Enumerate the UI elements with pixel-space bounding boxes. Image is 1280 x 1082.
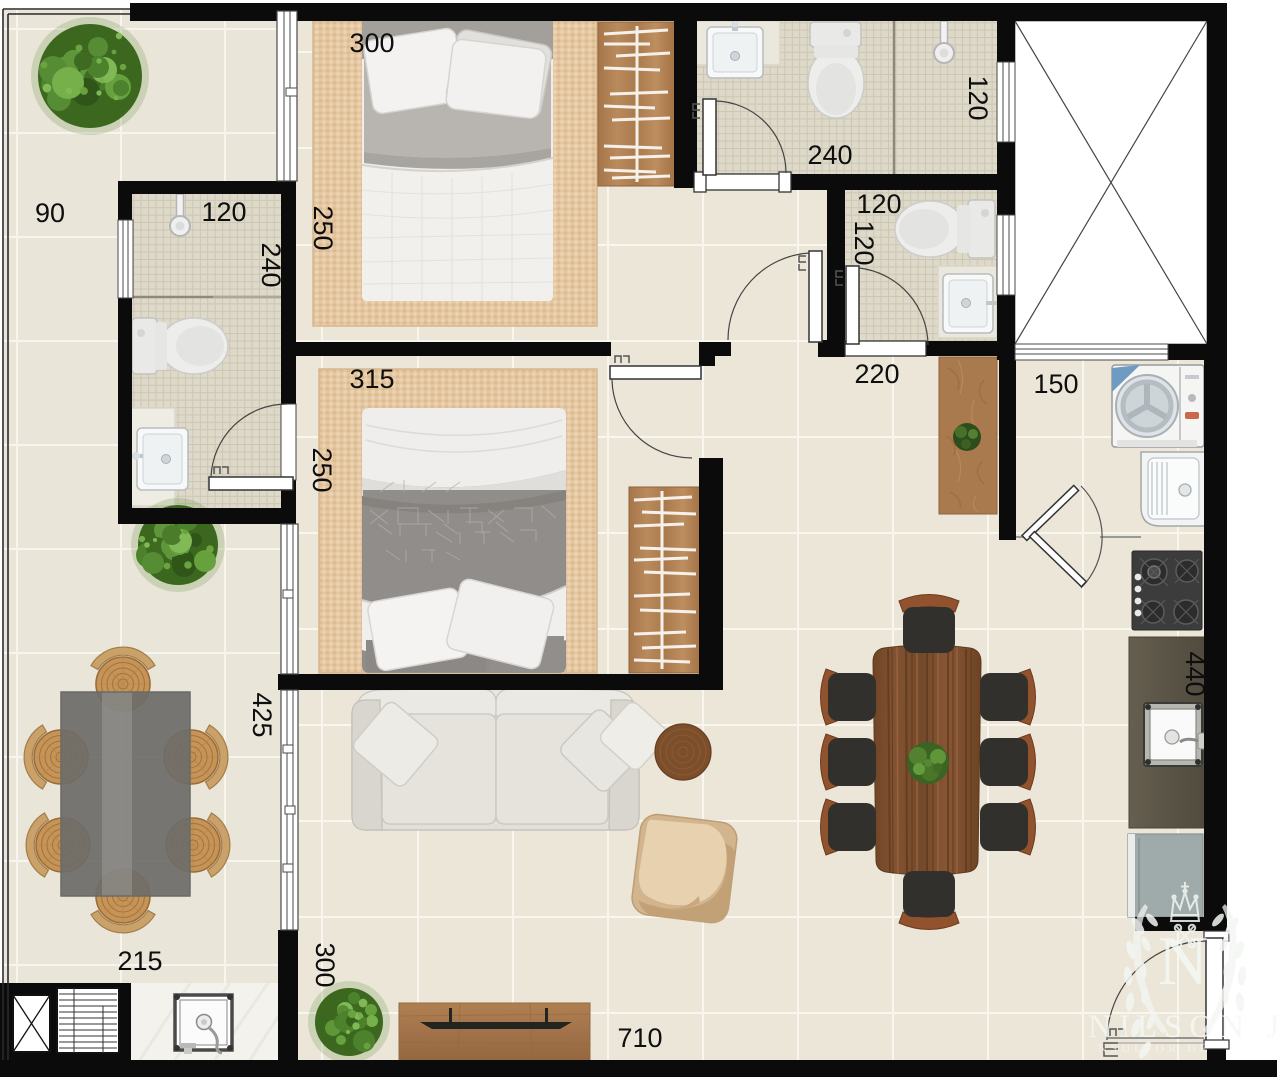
svg-text:240: 240 (807, 140, 852, 170)
svg-text:250: 250 (307, 447, 337, 492)
svg-text:90: 90 (35, 198, 65, 228)
svg-text:425: 425 (247, 692, 277, 737)
svg-text:300: 300 (310, 942, 340, 987)
svg-text:300: 300 (349, 28, 394, 58)
svg-text:120: 120 (856, 189, 901, 219)
svg-text:N: N (1158, 923, 1209, 1000)
svg-text:240: 240 (256, 242, 286, 287)
svg-text:NSULTOR DE: NSULTOR DE (1098, 1041, 1211, 1055)
svg-text:215: 215 (117, 946, 162, 976)
svg-text:150: 150 (1033, 369, 1078, 399)
svg-text:710: 710 (617, 1023, 662, 1053)
svg-text:250: 250 (308, 205, 338, 250)
svg-text:NILSON JU: NILSON JU (1088, 1009, 1280, 1045)
svg-text:120: 120 (963, 75, 993, 120)
svg-text:315: 315 (349, 364, 394, 394)
svg-text:220: 220 (854, 359, 899, 389)
svg-text:120: 120 (849, 220, 879, 265)
svg-text:120: 120 (201, 197, 246, 227)
svg-text:440: 440 (1180, 651, 1210, 696)
